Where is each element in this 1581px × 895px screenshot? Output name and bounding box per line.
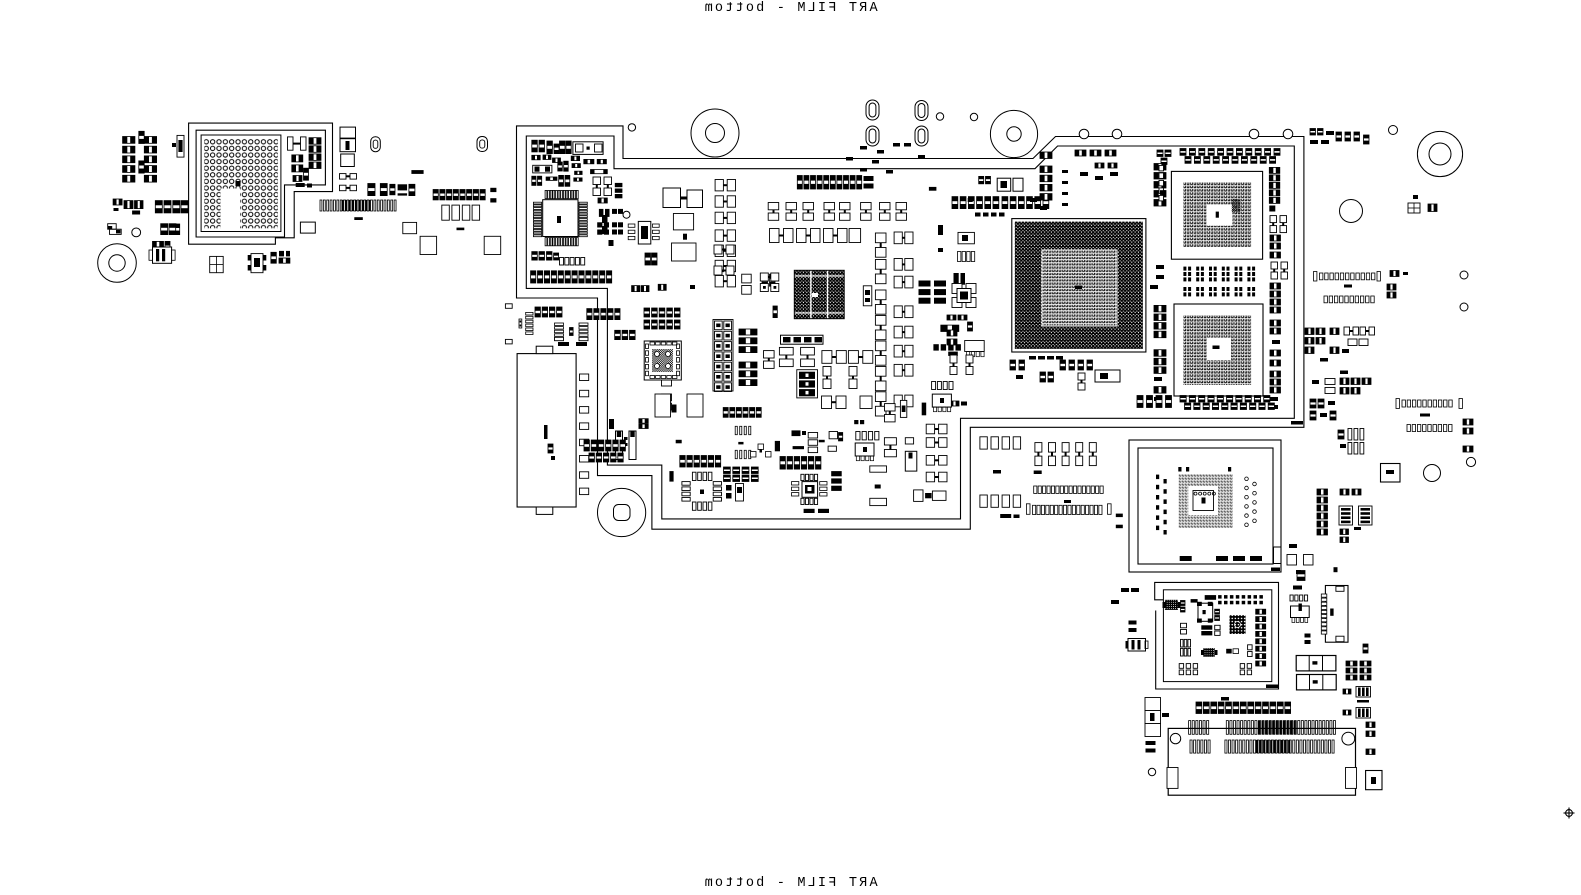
svg-text:ART FILM - bottom: ART FILM - bottom: [702, 1, 877, 16]
svg-text:ART FILM - bottom: ART FILM - bottom: [702, 876, 877, 891]
